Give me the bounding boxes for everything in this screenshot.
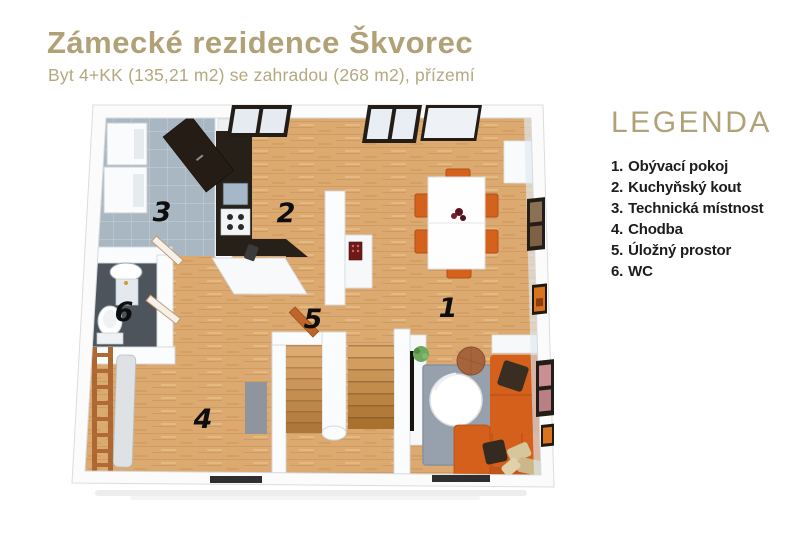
page-subtitle: Byt 4+KK (135,21 m2) se zahradou (268 m2… bbox=[48, 64, 607, 86]
coffee-table bbox=[430, 374, 482, 426]
stair-wall-right bbox=[394, 329, 410, 482]
coffee-machine bbox=[349, 242, 362, 260]
tv-screen bbox=[410, 351, 414, 431]
legend-item: 4. Chodba bbox=[611, 219, 793, 240]
floor-plan: 3 2 1 6 5 4 bbox=[60, 95, 605, 520]
living-window-doors bbox=[362, 105, 422, 143]
kitchen-sink bbox=[223, 183, 248, 205]
legend-item-number: 4. bbox=[611, 219, 623, 240]
legend-item-number: 2. bbox=[611, 177, 623, 198]
right-wall-window-2 bbox=[536, 359, 554, 417]
staircase-upper-flight bbox=[286, 345, 322, 433]
legend-item-label: Úložný prostor bbox=[628, 240, 731, 261]
plan-shadow bbox=[95, 490, 527, 500]
wc-sink bbox=[110, 263, 142, 281]
pillow-dark-2 bbox=[482, 439, 508, 465]
stair-wall-left bbox=[272, 332, 286, 482]
cooktop bbox=[221, 209, 250, 235]
legend-item: 2. Kuchyňský kout bbox=[611, 177, 793, 198]
stair-wall-middle bbox=[322, 332, 346, 432]
room-number-1: 1 bbox=[439, 293, 458, 324]
living-window-wide bbox=[420, 105, 482, 141]
staircase-lower-flight bbox=[348, 345, 394, 429]
legend-item-number: 5. bbox=[611, 240, 623, 261]
legend-item-label: Chodba bbox=[628, 219, 683, 240]
legend-item-label: Kuchyňský kout bbox=[628, 177, 741, 198]
header: Zámecké rezidence Škvorec Byt 4+KK (135,… bbox=[47, 24, 607, 86]
threshold-hall bbox=[210, 476, 262, 483]
room-number-6: 6 bbox=[115, 297, 134, 328]
legend-item-number: 1. bbox=[611, 156, 623, 177]
bench-mattress bbox=[113, 355, 136, 468]
room-number-5: 5 bbox=[304, 304, 323, 335]
threshold-terrace bbox=[432, 475, 490, 482]
kitchen-island bbox=[345, 235, 372, 288]
legend-item-label: Obývací pokoj bbox=[628, 156, 728, 177]
small-painting bbox=[541, 424, 554, 447]
room-number-3: 3 bbox=[153, 197, 172, 228]
hall-mat bbox=[245, 382, 267, 434]
washing-machines bbox=[104, 123, 147, 213]
gold-tap bbox=[124, 281, 128, 285]
legend-item-number: 3. bbox=[611, 198, 623, 219]
legend-item-label: Technická místnost bbox=[628, 198, 763, 219]
orange-painting bbox=[532, 283, 547, 315]
legend-item: 1. Obývací pokoj bbox=[611, 156, 793, 177]
room-divider bbox=[325, 191, 345, 305]
page-title: Zámecké rezidence Škvorec bbox=[47, 24, 607, 62]
legend-item: 6. WC bbox=[611, 261, 793, 282]
legend-item: 5. Úložný prostor bbox=[611, 240, 793, 261]
legend-title: LEGENDA bbox=[611, 106, 793, 140]
room-number-2: 2 bbox=[277, 198, 296, 229]
legend-item-label: WC bbox=[628, 261, 653, 282]
room-number-4: 4 bbox=[193, 404, 213, 435]
legend-item: 3. Technická místnost bbox=[611, 198, 793, 219]
page: { "header": { "title": "Zámecké rezidenc… bbox=[0, 0, 800, 534]
kitchen-window bbox=[227, 105, 292, 137]
legend: LEGENDA 1. Obývací pokoj 2. Kuchyňský ko… bbox=[611, 106, 793, 282]
legend-item-number: 6. bbox=[611, 261, 623, 282]
plant bbox=[413, 346, 429, 362]
right-wall-window-1 bbox=[527, 197, 545, 251]
